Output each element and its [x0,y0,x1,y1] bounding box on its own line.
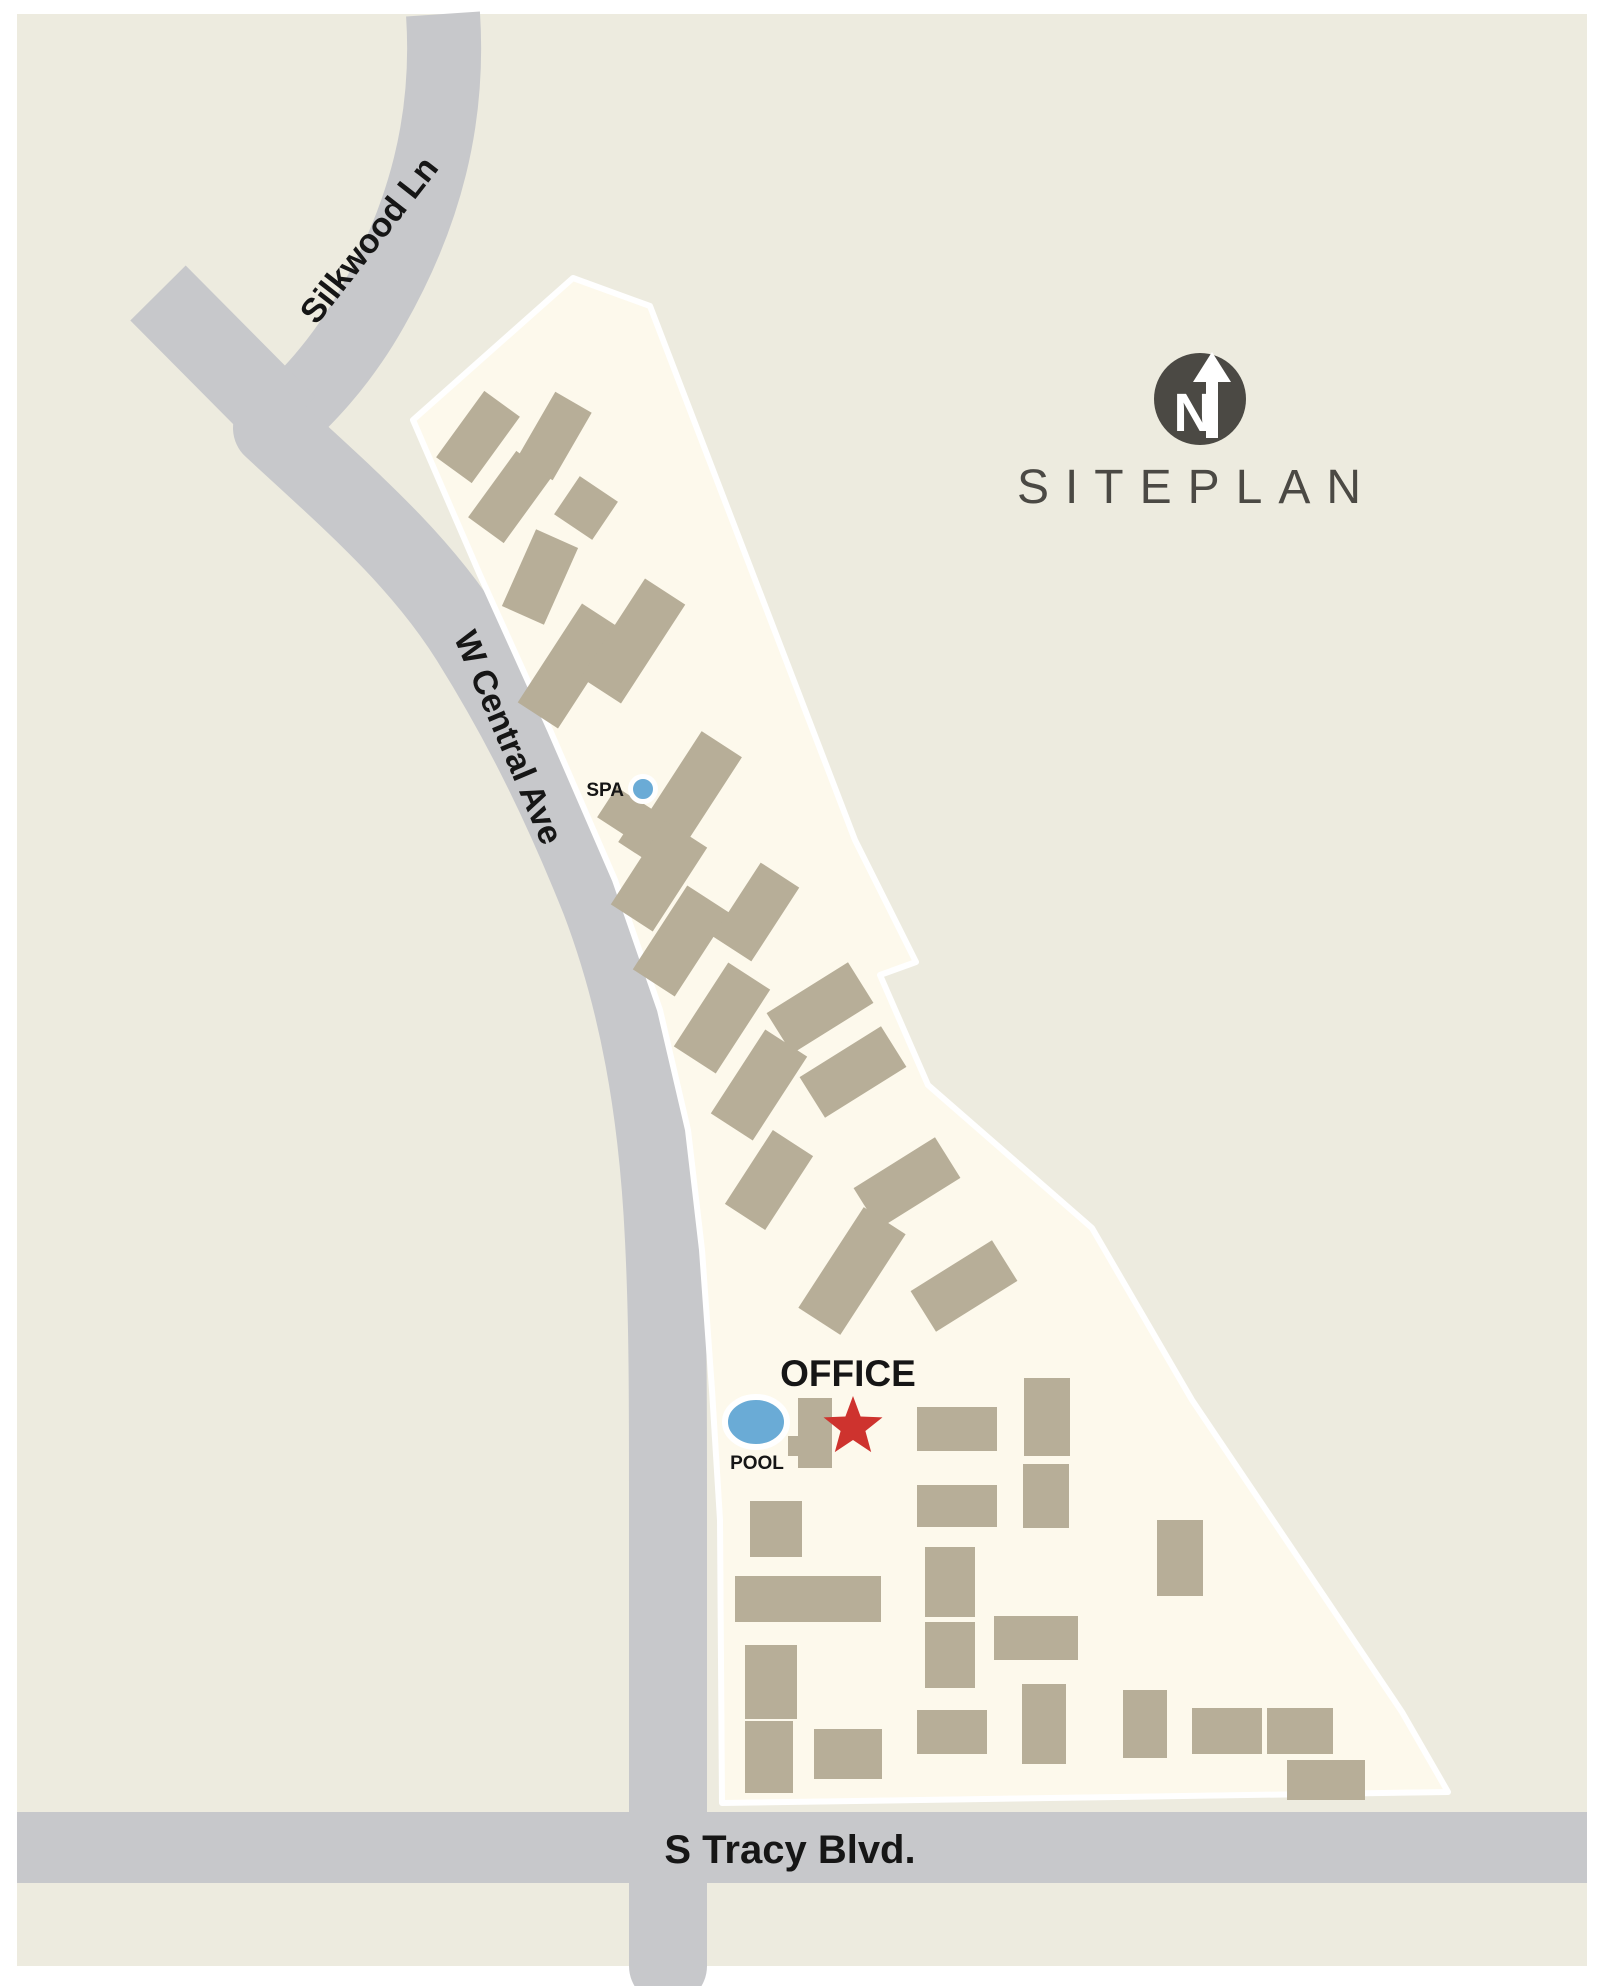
building [815,1576,881,1622]
building [917,1485,997,1527]
building [814,1729,882,1779]
pool-label: POOL [730,1453,784,1474]
building [925,1622,975,1688]
siteplan-canvas: Silkwood Ln W Central Ave S Tracy Blvd. … [0,0,1604,1986]
building [1157,1520,1203,1596]
building [745,1721,793,1793]
building [917,1407,997,1451]
building [735,1576,815,1622]
pool-marker [725,1397,787,1447]
building [1287,1760,1365,1800]
building [750,1501,802,1557]
building [1267,1708,1333,1754]
building [1123,1690,1167,1758]
building [1023,1464,1069,1528]
street-label-tracy: S Tracy Blvd. [664,1828,915,1872]
building [745,1645,797,1719]
office-building [798,1398,832,1468]
building [1192,1708,1262,1754]
spa-marker [631,777,656,802]
office-label: OFFICE [780,1353,916,1394]
building [1024,1378,1070,1456]
building [994,1616,1078,1660]
spa-label: SPA [586,780,624,801]
siteplan-map: Silkwood Ln W Central Ave S Tracy Blvd. … [0,0,1604,1986]
building [917,1710,987,1754]
building [788,1436,800,1456]
building [1022,1684,1066,1764]
building [925,1547,975,1617]
page-title: SITEPLAN [1017,461,1377,514]
